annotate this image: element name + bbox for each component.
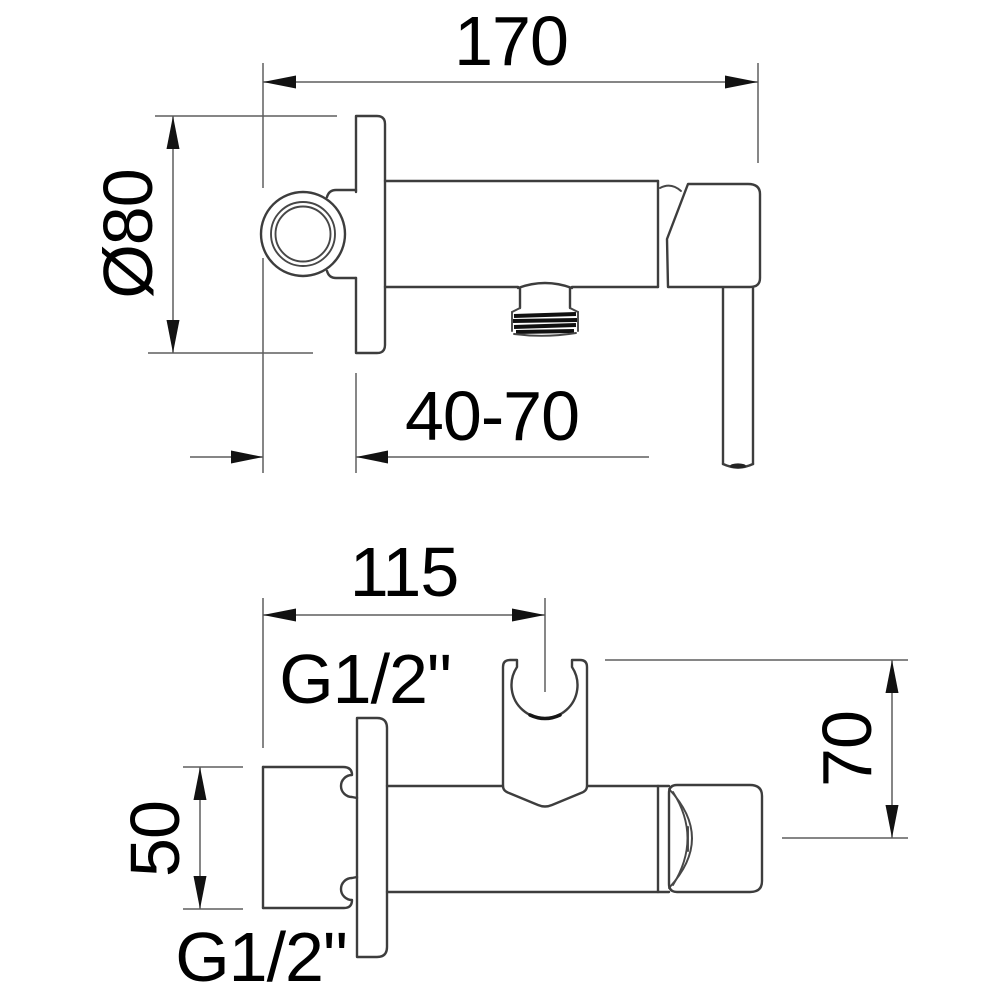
dim-plate-diameter-label: Ø80: [89, 169, 167, 298]
technical-drawing-page: 170 Ø80 40-70: [0, 0, 1000, 1000]
outlet-thread-band: [513, 320, 577, 321]
dim-holder-spacing-label: 115: [350, 533, 459, 611]
outlet-thread-band: [514, 325, 576, 327]
inlet-thread-label: G1/2": [175, 918, 347, 996]
dim-wall-distance-label: 40-70: [405, 377, 579, 455]
outlet-thread-band: [516, 331, 574, 332]
outlet-thread-label: G1/2": [279, 640, 451, 718]
dim-holder-height-label: 70: [808, 711, 886, 787]
handle-lever-tip-cap: [730, 463, 746, 468]
bidet-mixer-technical-drawing: 170 Ø80 40-70: [0, 0, 1000, 1000]
outlet-thread-band: [514, 314, 576, 316]
dim-total-length-label: 170: [454, 2, 568, 80]
dim-block-height-label: 50: [116, 801, 194, 877]
